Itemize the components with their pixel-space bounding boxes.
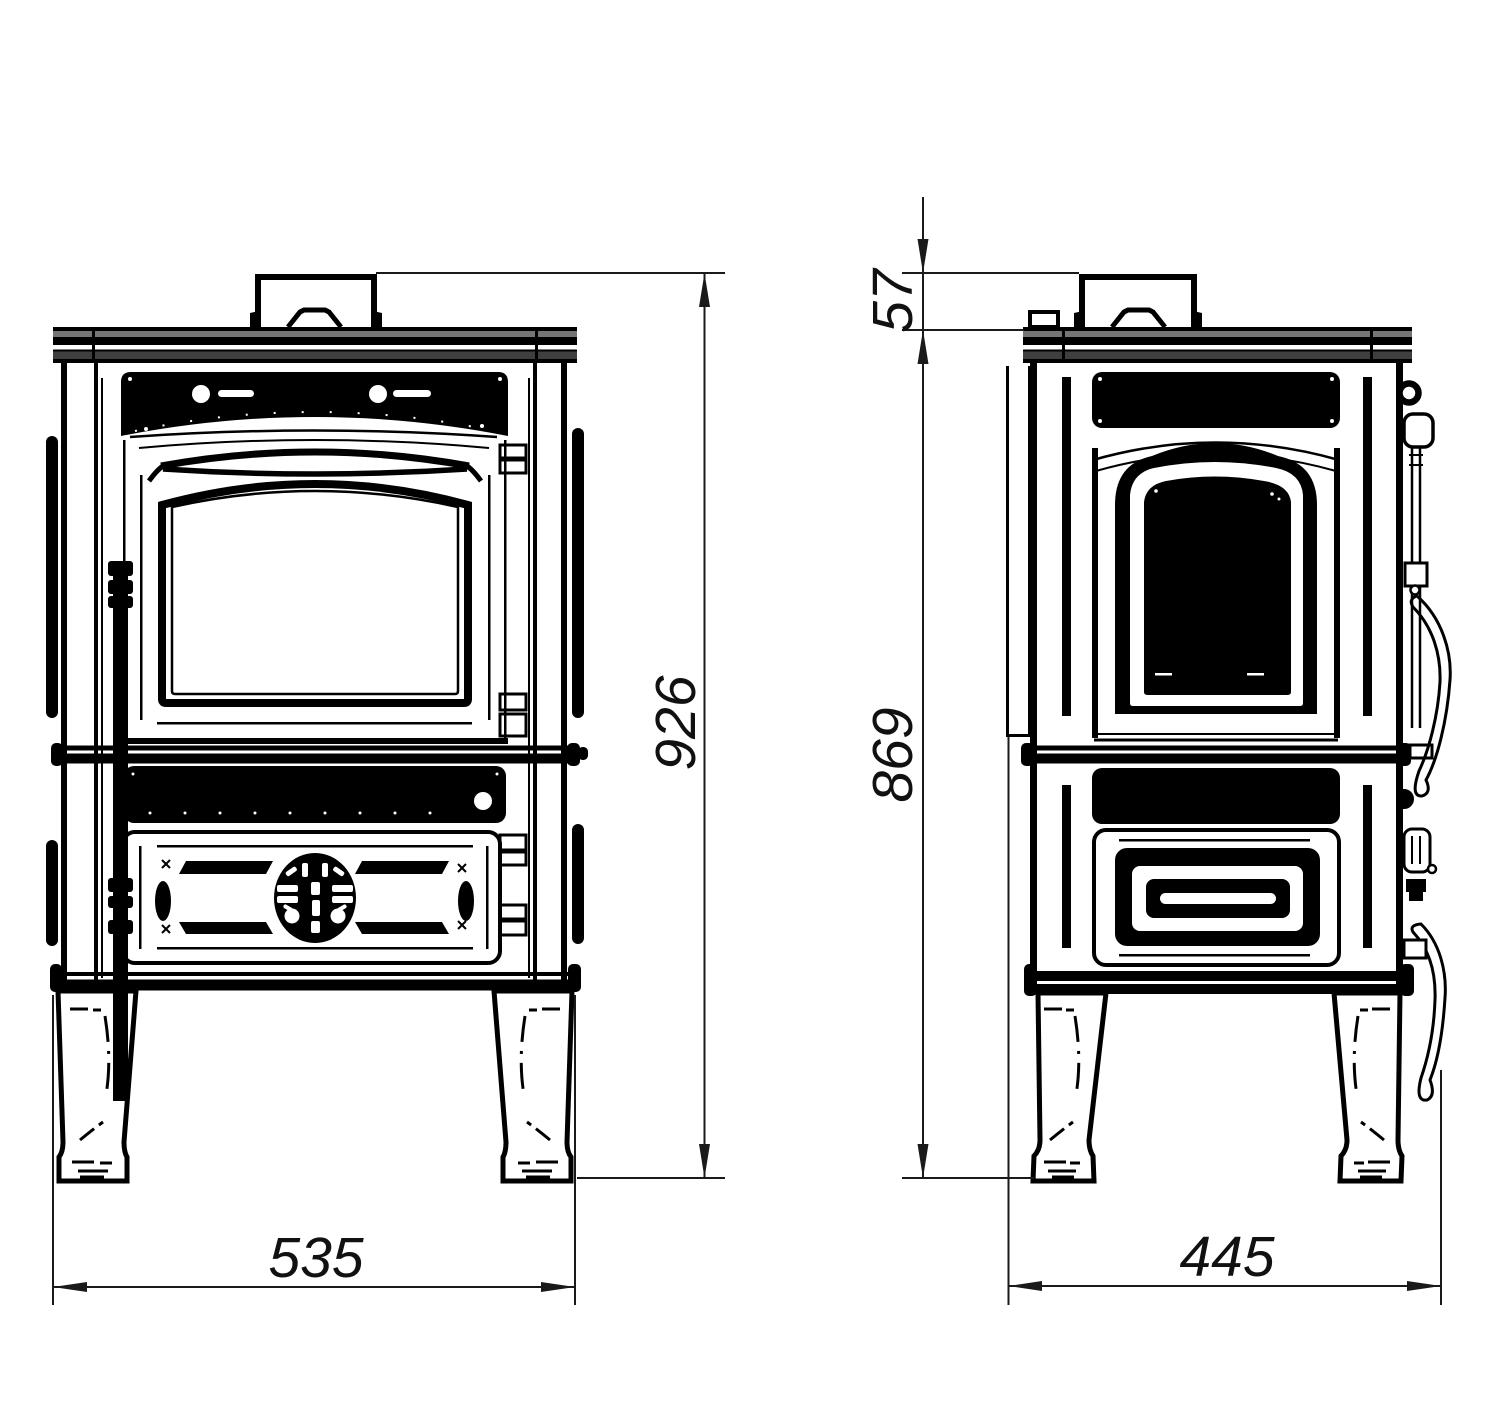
svg-text:535: 535 [268,1226,363,1290]
svg-text:445: 445 [1179,1225,1274,1289]
svg-text:926: 926 [644,675,708,770]
svg-text:57: 57 [861,267,925,333]
svg-text:869: 869 [861,707,925,802]
